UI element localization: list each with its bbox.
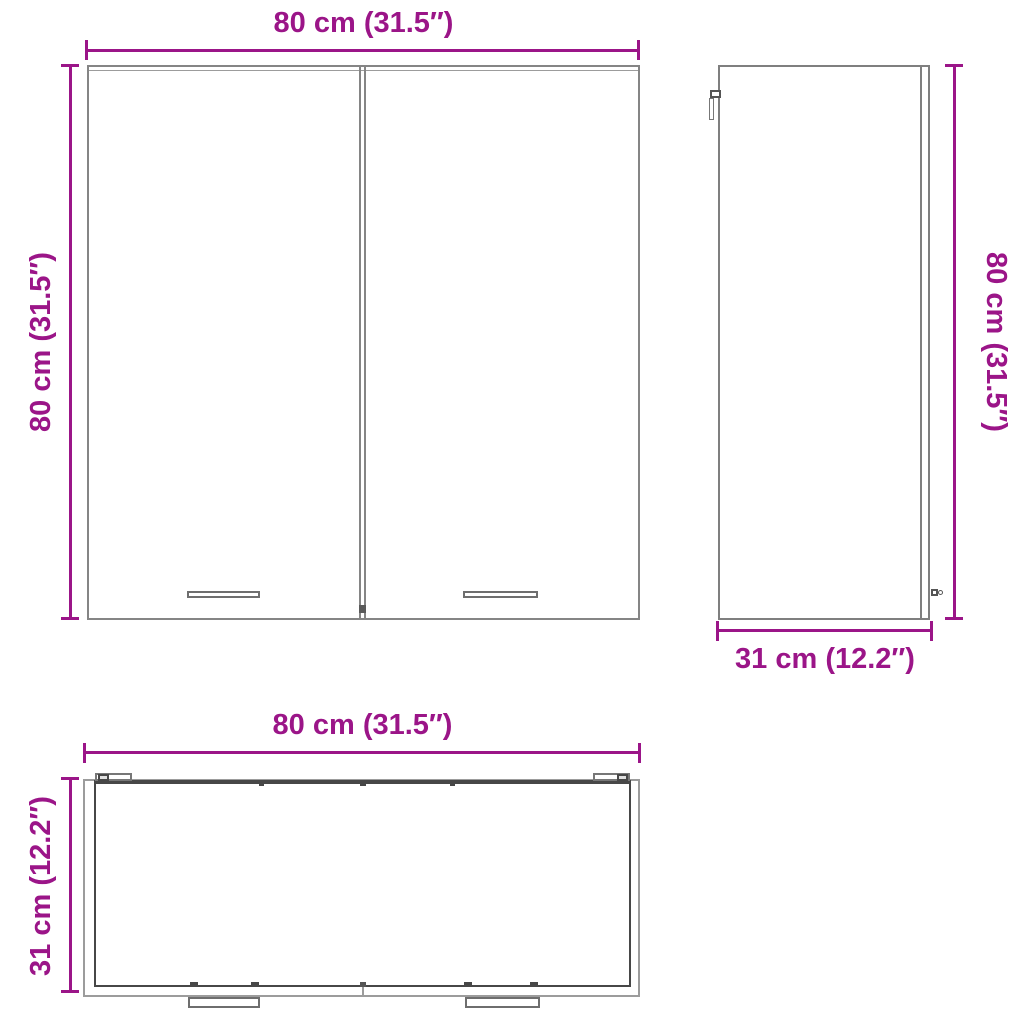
dimension-line [69, 778, 72, 993]
diagram-canvas: 80 cm (31.5″) 80 cm (31.5″) 80 cm (31.5″… [0, 0, 1024, 1024]
front-left-door-handle [187, 591, 260, 598]
front-right-door-handle [463, 591, 538, 598]
top-carcass-outline [94, 780, 631, 987]
side-cabinet-outline [718, 65, 930, 620]
back-edge-mark [450, 781, 455, 786]
dimension-tick [85, 40, 88, 60]
right-hinge-cup [617, 774, 628, 781]
dimension-tick [716, 621, 719, 641]
side-door-handle [931, 589, 938, 596]
top-width-label: 80 cm (31.5″) [84, 707, 641, 743]
dimension-line [717, 629, 933, 632]
dimension-tick [83, 743, 86, 763]
back-edge-mark [360, 781, 366, 786]
wall-mount-bracket [710, 90, 721, 98]
dimension-tick [637, 40, 640, 60]
front-width-label: 80 cm (31.5″) [87, 5, 640, 41]
front-height-label: 80 cm (31.5″) [23, 42, 59, 642]
dimension-tick [945, 64, 963, 67]
dimension-tick [61, 617, 79, 620]
side-depth-label: 31 cm (12.2″) [705, 641, 945, 677]
handle-screw-mark [464, 982, 472, 986]
dimension-tick [61, 777, 79, 780]
top-door-split-line [362, 987, 364, 997]
dimension-tick [638, 743, 641, 763]
dimension-line [87, 49, 640, 52]
front-door-divider-foot [359, 605, 366, 613]
top-depth-label: 31 cm (12.2″) [23, 686, 59, 1024]
dimension-line [84, 751, 641, 754]
dimension-line [953, 65, 956, 620]
side-height-label: 80 cm (31.5″) [978, 42, 1014, 642]
top-left-door-handle [188, 997, 260, 1008]
top-door-seam-mark [360, 982, 366, 987]
dimension-tick [930, 621, 933, 641]
handle-screw-mark [190, 982, 198, 986]
front-door-divider [359, 67, 366, 618]
dimension-line [69, 65, 72, 620]
top-right-door-handle [465, 997, 540, 1008]
dimension-tick [61, 64, 79, 67]
handle-screw-mark [530, 982, 538, 986]
side-door-handle-knob [938, 590, 943, 595]
handle-screw-mark [251, 982, 259, 986]
wall-mount-bracket-bar [709, 98, 714, 120]
side-door-panel-line [920, 66, 922, 619]
dimension-tick [61, 990, 79, 993]
back-edge-mark [259, 781, 264, 786]
left-hinge-cup [98, 774, 109, 781]
dimension-tick [945, 617, 963, 620]
